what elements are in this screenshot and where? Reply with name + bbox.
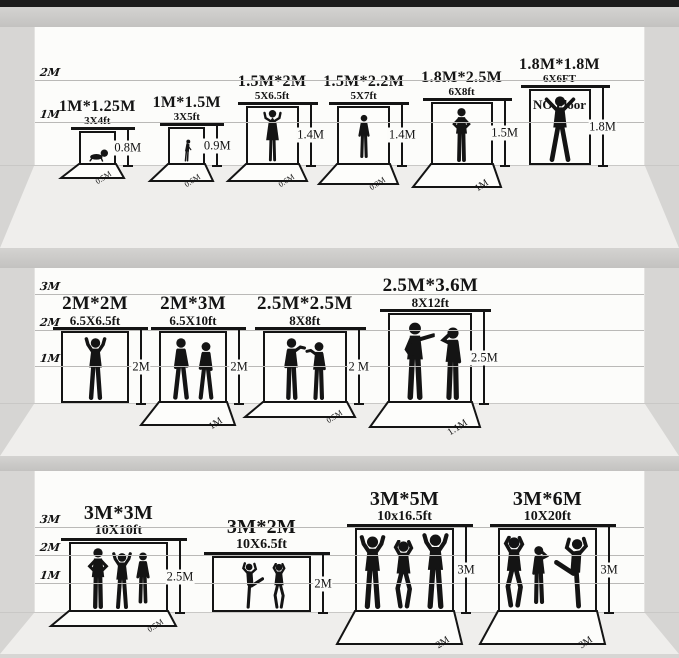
backdrop-item: 1M*1.5M3X5ft0.9M0.6M: [153, 95, 221, 165]
backdrop-frame-area: 3M3M: [498, 528, 597, 612]
meter-scale-label: 1M: [39, 569, 61, 582]
studio-room: 1M*1.25M3X4ft0.8M0.5M1M*1.5M3X5ft0.9M0.6…: [0, 27, 679, 248]
backdrop-crossbar: [347, 524, 473, 527]
backdrop-item: 1.5M*2.2M5X7ft1.4M0.8M: [323, 74, 404, 165]
meter-scale-label: 1M: [39, 352, 61, 365]
backdrop-crossbar: [204, 552, 330, 555]
height-dimension-line: 1.5M: [504, 99, 506, 167]
height-dimension-label: 3M: [456, 562, 475, 577]
height-dimension-line: 3M: [608, 525, 610, 614]
backdrop-frame: [61, 331, 129, 403]
height-dimension-label: 3M: [599, 562, 618, 577]
floor-mat: 0.6M: [220, 163, 309, 189]
backdrop-frame-area: 2M: [212, 556, 311, 612]
backdrop-item: 1.8M*2.5M6X8ft1.5M1M: [421, 70, 502, 165]
backdrop-size-title: 3M*5M: [370, 489, 439, 510]
backdrop-size-subtitle: 5X7ft: [351, 91, 377, 102]
backdrop-size-title: 2.5M*3.6M: [383, 276, 479, 296]
meter-scale-label: 3M: [39, 280, 61, 293]
floor-mat: 0.5M: [43, 610, 178, 634]
meter-gridline: [35, 527, 644, 528]
backdrop-size-title: 1.8M*2.5M: [421, 70, 502, 87]
backdrop-frame-area: 0.8M0.5M: [79, 131, 116, 165]
floor-mat: 1M: [405, 163, 503, 195]
backdrop-frame-area: 2.5M1.1M: [388, 313, 472, 403]
backdrop-size-title: 1.5M*2M: [238, 74, 306, 91]
backdrop-crossbar: [160, 123, 224, 126]
backdrop-frame: [431, 102, 493, 165]
backdrop-item: 3M*6M10X20ft3M3M: [498, 489, 597, 612]
backdrop-frame: [337, 106, 390, 165]
meter-gridline: [35, 330, 644, 331]
floor-mat: 0.8M: [311, 163, 400, 192]
meter-scale-label: 3M: [39, 513, 61, 526]
backdrop-item: 2M*3M6.5X10ft2M1M: [159, 294, 227, 403]
height-dimension-line: 0.8M: [127, 128, 129, 167]
panel-row-small-sizes: 1M*1.25M3X4ft0.8M0.5M1M*1.5M3X5ft0.9M0.6…: [0, 7, 679, 248]
figure-group: [214, 561, 309, 609]
backdrop-item: 3M*3M10X10ft2.5M0.5M: [69, 503, 168, 612]
backdrop-frame-area: 2M1M: [159, 331, 227, 403]
backdrop-size-title: 2M*3M: [160, 294, 226, 314]
panel-row-large-sizes: 3M*3M10X10ft2.5M0.5M3M*2M10X6.5ft2M3M*5M…: [0, 456, 679, 654]
height-dimension-line: 2 M: [358, 328, 360, 405]
backdrop-crossbar: [151, 327, 246, 330]
height-dimension-label: 2.5M: [470, 350, 499, 365]
height-dimension-line: 0.9M: [216, 124, 218, 167]
armsup-silhouette-icon: [78, 337, 113, 400]
backdrop-size-subtitle: 6X8ft: [448, 87, 474, 98]
backdrop-size-title: 2M*2M: [62, 294, 128, 314]
no-floor-label: NO Floor: [531, 97, 589, 113]
figure-group: [248, 109, 297, 162]
floor-mat: 0.5M: [237, 401, 357, 425]
backdrop-frame: [388, 313, 472, 403]
backdrop-size-subtitle: 8X8ft: [289, 314, 320, 327]
backdrop-crossbar: [71, 127, 135, 130]
meter-gridline: [35, 80, 644, 81]
backdrop-item: 1.5M*2M5X6.5ft1.4M0.6M: [238, 74, 306, 165]
backdrop-size-subtitle: 10X20ft: [524, 510, 571, 524]
hips-silhouette-icon: [447, 107, 476, 162]
divider-band: [0, 7, 679, 27]
height-dimension-line: 2.5M: [483, 310, 485, 405]
backdrop-frame-area: 1.4M0.8M: [337, 106, 390, 165]
backdrop-row: 2M*2M6.5X6.5ft2M2M*3M6.5X10ft2M1M2.5M*2.…: [61, 276, 478, 403]
figure-group: [390, 321, 470, 400]
backdrop-item: 2.5M*3.6M8X12ft2.5M1.1M: [383, 276, 479, 403]
floor-mat: 0.5M: [53, 163, 126, 186]
height-dimension-label: 2 M: [348, 359, 371, 374]
height-dimension-label: 2M: [313, 576, 332, 591]
backdrop-frame-area: 1.4M0.6M: [246, 106, 299, 165]
backdrop-size-subtitle: 10x16.5ft: [377, 510, 432, 524]
backdrop-size-subtitle: 6.5X10ft: [169, 314, 216, 327]
height-dimension-label: 1.4M: [296, 128, 325, 143]
backdrop-size-title: 2.5M*2.5M: [257, 294, 353, 314]
meter-gridline: [35, 366, 644, 367]
panel-row-medium-sizes: 2M*2M6.5X6.5ft2M2M*3M6.5X10ft2M1M2.5M*2.…: [0, 248, 679, 456]
backdrop-frame-area: 0.9M0.6M: [168, 127, 205, 165]
kick-silhouette-icon: [546, 535, 597, 609]
backdrop-item: 1.8M*1.8M6X6FTNO Floor1.8M: [519, 57, 600, 165]
backdrop-size-chart: 1M*1.25M3X4ft0.8M0.5M1M*1.5M3X5ft0.9M0.6…: [0, 0, 679, 658]
meter-gridline: [35, 583, 644, 584]
backdrop-crossbar: [61, 538, 187, 541]
backdrop-crossbar: [53, 327, 148, 330]
studio-room: 2M*2M6.5X6.5ft2M2M*3M6.5X10ft2M1M2.5M*2.…: [0, 268, 679, 456]
stand-silhouette-icon: [353, 110, 375, 162]
backdrop-item: 3M*5M10x16.5ft3M2M: [355, 489, 454, 612]
height-dimension-label: 2.5M: [166, 569, 195, 584]
backdrop-frame: [263, 331, 347, 403]
backdrop-frame: [355, 528, 454, 612]
floor-mat: 1M: [133, 401, 237, 433]
dress-silhouette-icon: [258, 109, 287, 162]
studio-wall: 3M*3M10X10ft2.5M0.5M3M*2M10X6.5ft2M3M*5M…: [34, 471, 645, 612]
divider-band: [0, 248, 679, 268]
backdrop-item: 2.5M*2.5M8X8ft2 M0.5M: [257, 294, 353, 403]
backdrop-item: 1M*1.25M3X4ft0.8M0.5M: [59, 99, 136, 165]
armsup-silhouette-icon: [415, 533, 454, 609]
height-dimension-label: 1.5M: [490, 126, 519, 141]
figure-group: [265, 337, 345, 400]
height-dimension-label: 1.4M: [388, 128, 417, 143]
backdrop-size-subtitle: 5X6.5ft: [255, 91, 290, 102]
backdrop-size-title: 1M*1.25M: [59, 99, 136, 116]
backdrop-size-title: 1.8M*1.8M: [519, 57, 600, 74]
backdrop-item: 3M*2M10X6.5ft2M: [212, 517, 311, 612]
backdrop-crossbar: [329, 102, 409, 105]
backdrop-size-subtitle: 6.5X6.5ft: [70, 314, 121, 327]
backdrop-size-title: 3M*6M: [513, 489, 582, 510]
height-dimension-line: 1.4M: [401, 103, 403, 167]
height-dimension-line: 1.4M: [310, 103, 312, 167]
height-dimension-line: 2M: [140, 328, 142, 405]
backdrop-frame-area: 3M2M: [355, 528, 454, 612]
height-dimension-label: 0.9M: [203, 138, 232, 153]
drink-silhouette-icon: [434, 326, 472, 400]
height-dimension-label: 1.8M: [588, 119, 617, 134]
meter-gridline: [35, 122, 644, 123]
height-dimension-label: 2M: [229, 359, 248, 374]
backdrop-frame: [246, 106, 299, 165]
backdrop-row: 3M*3M10X10ft2.5M0.5M3M*2M10X6.5ft2M3M*5M…: [69, 489, 597, 612]
dance-silhouette-icon: [265, 563, 293, 609]
figure-group: [161, 337, 225, 400]
baby-silhouette-icon: [85, 145, 110, 162]
backdrop-crossbar: [490, 524, 616, 527]
backdrop-frame: [69, 542, 168, 612]
height-dimension-label: 2M: [131, 359, 150, 374]
walk-silhouette-icon: [190, 341, 222, 400]
backdrop-crossbar: [423, 98, 512, 101]
figure-group: [339, 110, 388, 162]
meter-scale-label: 2M: [39, 66, 61, 79]
figure-group: [81, 145, 114, 162]
figure-group: [63, 337, 127, 400]
studio-wall: 1M*1.25M3X4ft0.8M0.5M1M*1.5M3X5ft0.9M0.6…: [34, 27, 645, 165]
backdrop-frame-area: 1.5M1M: [431, 102, 493, 165]
backdrop-frame: [168, 127, 205, 165]
backdrop-size-title: 3M*3M: [84, 503, 153, 524]
talk-silhouette-icon: [302, 341, 336, 400]
height-dimension-line: 2.5M: [179, 539, 181, 614]
floor-mat: 2M: [329, 610, 464, 652]
figure-group: [500, 535, 595, 609]
height-dimension-line: 2M: [238, 328, 240, 405]
backdrop-frame-area: 2.5M0.5M: [69, 542, 168, 612]
backdrop-frame: [212, 556, 311, 612]
floor-mat: 0.6M: [142, 163, 215, 189]
figure-group: [170, 138, 203, 162]
studio-wall: 2M*2M6.5X6.5ft2M2M*3M6.5X10ft2M1M2.5M*2.…: [34, 268, 645, 403]
meter-gridline: [35, 294, 644, 295]
child-silhouette-icon: [179, 138, 194, 162]
backdrop-size-subtitle: 10X6.5ft: [236, 538, 287, 552]
backdrop-frame-area: 2 M0.5M: [263, 331, 347, 403]
figure-group: [357, 533, 452, 609]
floor-mat: 3M: [472, 610, 607, 652]
backdrop-frame-area: 2M: [61, 331, 129, 403]
backdrop-frame: [159, 331, 227, 403]
height-dimension-line: 1.8M: [602, 86, 604, 167]
backdrop-frame-area: NO Floor1.8M: [529, 89, 591, 165]
backdrop-crossbar: [521, 85, 610, 88]
backdrop-size-subtitle: 8X12ft: [412, 296, 450, 309]
studio-room: 3M*3M10X10ft2.5M0.5M3M*2M10X6.5ft2M3M*5M…: [0, 471, 679, 654]
backdrop-size-title: 1M*1.5M: [153, 95, 221, 112]
top-bar: [0, 0, 679, 7]
backdrop-crossbar: [255, 327, 366, 330]
divider-band: [0, 456, 679, 471]
backdrop-row: 1M*1.25M3X4ft0.8M0.5M1M*1.5M3X5ft0.9M0.6…: [59, 57, 600, 165]
backdrop-crossbar: [380, 309, 491, 312]
backdrop-item: 2M*2M6.5X6.5ft2M: [61, 294, 129, 403]
height-dimension-line: 3M: [465, 525, 467, 614]
backdrop-frame: NO Floor: [529, 89, 591, 165]
height-dimension-line: 2M: [322, 553, 324, 614]
floor-mat: 1.1M: [362, 401, 482, 435]
backdrop-frame: [498, 528, 597, 612]
meter-scale-label: 2M: [39, 541, 61, 554]
backdrop-size-title: 1.5M*2.2M: [323, 74, 404, 91]
backdrop-crossbar: [238, 102, 318, 105]
meter-gridline: [35, 555, 644, 556]
meter-scale-label: 1M: [39, 108, 61, 121]
height-dimension-label: 0.8M: [113, 140, 142, 155]
backdrop-frame: [79, 131, 116, 165]
figure-group: [433, 107, 491, 162]
